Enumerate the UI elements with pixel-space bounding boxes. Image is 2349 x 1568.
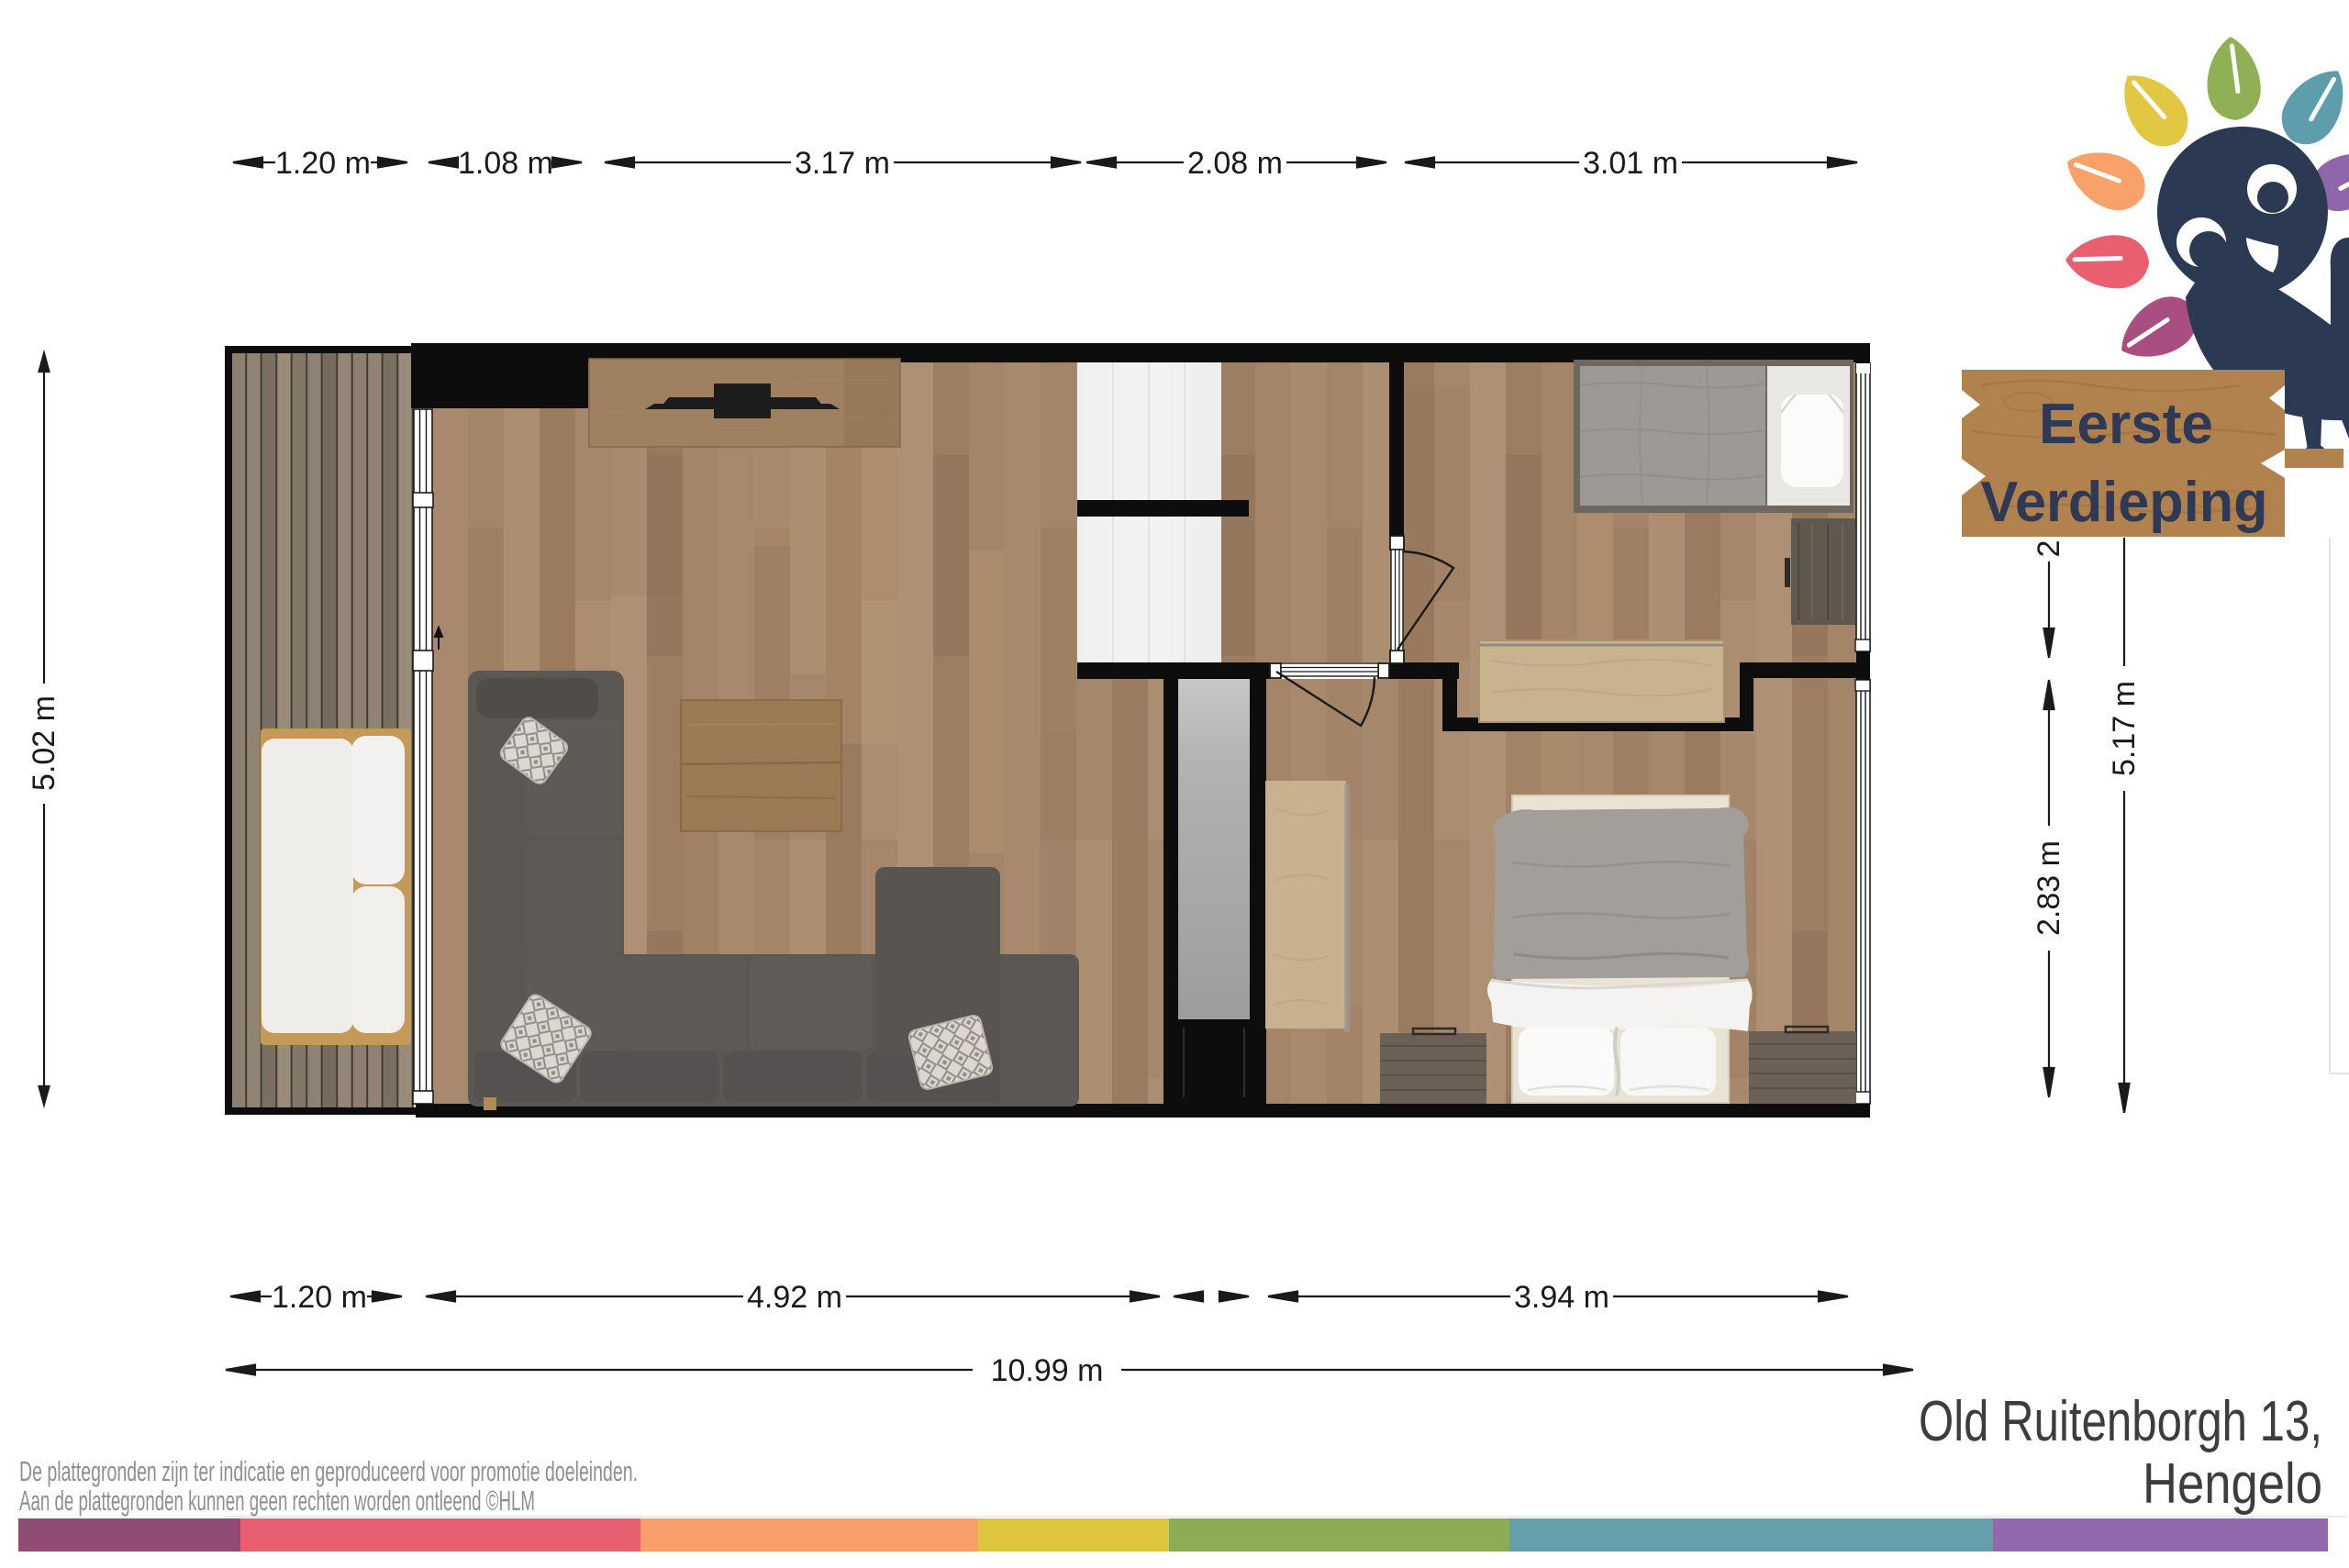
svg-text:5.02 m: 5.02 m bbox=[27, 695, 61, 791]
svg-text:1.20 m: 1.20 m bbox=[272, 1280, 367, 1315]
svg-text:5.17 m: 5.17 m bbox=[2107, 681, 2142, 776]
svg-text:2.08 m: 2.08 m bbox=[1187, 146, 1283, 181]
svg-text:Verdieping: Verdieping bbox=[1981, 471, 2268, 534]
svg-text:Hengelo: Hengelo bbox=[2143, 1452, 2322, 1516]
svg-text:1.08 m: 1.08 m bbox=[458, 146, 553, 181]
svg-text:1.20 m: 1.20 m bbox=[275, 146, 371, 181]
svg-text:De plattegronden zijn ter indi: De plattegronden zijn ter indicatie en g… bbox=[19, 1455, 638, 1487]
svg-text:4.92 m: 4.92 m bbox=[747, 1280, 842, 1315]
svg-text:10.99 m: 10.99 m bbox=[991, 1353, 1104, 1388]
svg-text:3.94 m: 3.94 m bbox=[1514, 1280, 1609, 1315]
svg-text:Old Ruitenborgh 13,: Old Ruitenborgh 13, bbox=[1919, 1390, 2322, 1453]
svg-text:3.17 m: 3.17 m bbox=[795, 146, 890, 181]
svg-text:2: 2 bbox=[2032, 540, 2066, 558]
svg-text:Aan de plattegronden kunnen ge: Aan de plattegronden kunnen geen rechten… bbox=[19, 1485, 535, 1517]
svg-text:2.83 m: 2.83 m bbox=[2032, 840, 2066, 936]
svg-text:3.01 m: 3.01 m bbox=[1583, 146, 1678, 181]
svg-text:Eerste: Eerste bbox=[2039, 393, 2213, 456]
